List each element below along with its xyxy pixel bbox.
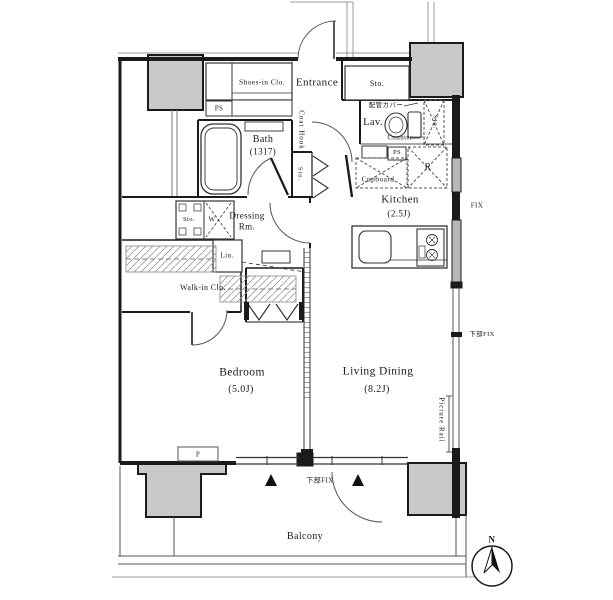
bathtub: [201, 124, 241, 194]
dressing-room-door: [270, 203, 310, 243]
label-living-dining: Living Dining: [343, 366, 414, 378]
label-walk-in-closet: Walk-in Clo.: [180, 284, 226, 292]
column-top-right: [410, 43, 463, 97]
label-counter: Counter: [387, 135, 412, 142]
label-storage-hall: Sto.: [296, 167, 303, 181]
label-bath-size: (1317): [250, 148, 276, 157]
label-lower-fix-bottom: 下部FIX: [306, 478, 333, 485]
kitchen-counter: [352, 226, 447, 268]
label-balcony: Balcony: [287, 532, 323, 542]
label-bath: Bath: [253, 135, 274, 145]
column-top-left: [148, 55, 203, 110]
window-tick: [451, 332, 462, 337]
label-living-dining-size: (8.2J): [364, 385, 389, 395]
label-dressing-room-2: Rm.: [239, 223, 255, 232]
picture-rail-line: [446, 396, 452, 452]
label-compass-north: N: [489, 536, 496, 545]
label-refrigerator: R: [425, 163, 431, 172]
label-storage-lavatory: Sto.: [431, 115, 438, 129]
label-lower-fix-right: 下部FIX: [469, 332, 494, 339]
lavatory-cabinet: [362, 146, 387, 158]
compass: [472, 546, 512, 586]
bath-door: [248, 158, 288, 195]
label-kitchen: Kitchen: [381, 195, 419, 206]
column-bottom-left: [138, 464, 226, 517]
triangle-marker: [352, 474, 364, 486]
label-shoes-in-closet: Shoes-in Clo.: [239, 78, 285, 86]
label-coat-hook: Coat Hook: [298, 110, 305, 150]
triangle-marker: [265, 474, 277, 486]
label-kitchen-size: (2.5J): [387, 210, 410, 219]
bath-counter: [245, 122, 283, 131]
floorplan-drawing: [0, 0, 613, 600]
label-dressing-room-1: Dressing: [229, 212, 264, 221]
label-cupboard: Cupboard: [362, 175, 395, 183]
label-linen: Lin.: [220, 253, 233, 260]
floor-plan: Shoes-in Clo. Entrance Sto. PS Coat Hook…: [0, 0, 613, 600]
label-bedroom-size: (5.0J): [228, 385, 253, 395]
window-fix-right: [452, 158, 461, 192]
label-pipe-space: P: [196, 452, 200, 459]
label-ps-top: PS: [215, 106, 224, 113]
walk-in-closet-door: [192, 310, 227, 345]
label-bedroom: Bedroom: [219, 367, 265, 379]
label-entrance: Entrance: [296, 78, 338, 89]
label-ps-kitchen: PS: [393, 150, 401, 157]
kitchen-sink: [359, 231, 391, 263]
dressing-cabinet: [262, 251, 290, 263]
label-lavatory: Lav.: [363, 118, 383, 129]
label-storage-top: Sto.: [370, 80, 384, 88]
window-kitchen-right: [452, 220, 461, 282]
hall-storage-doors: [313, 156, 328, 198]
grill: [419, 246, 425, 258]
label-picture-rail: Picture Rail: [438, 397, 445, 442]
label-storage-washer: Sto.: [183, 217, 195, 224]
shoes-shelf: [232, 100, 292, 116]
kitchen-fixtures: [352, 226, 447, 268]
label-fix: FIX: [471, 203, 483, 210]
entrance-door: [298, 21, 336, 59]
label-washer: W: [208, 217, 215, 224]
label-pipe-cover: 配管カバー: [369, 103, 404, 110]
